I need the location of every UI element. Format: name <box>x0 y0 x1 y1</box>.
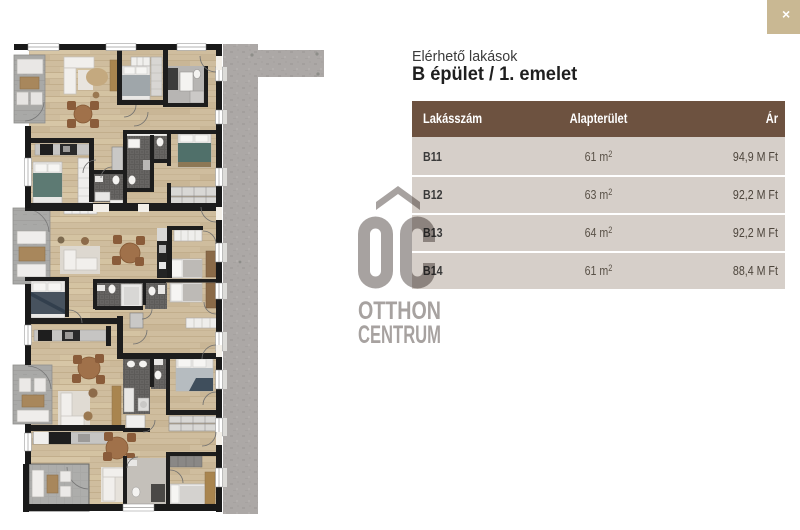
svg-text:CENTRUM: CENTRUM <box>358 321 441 349</box>
